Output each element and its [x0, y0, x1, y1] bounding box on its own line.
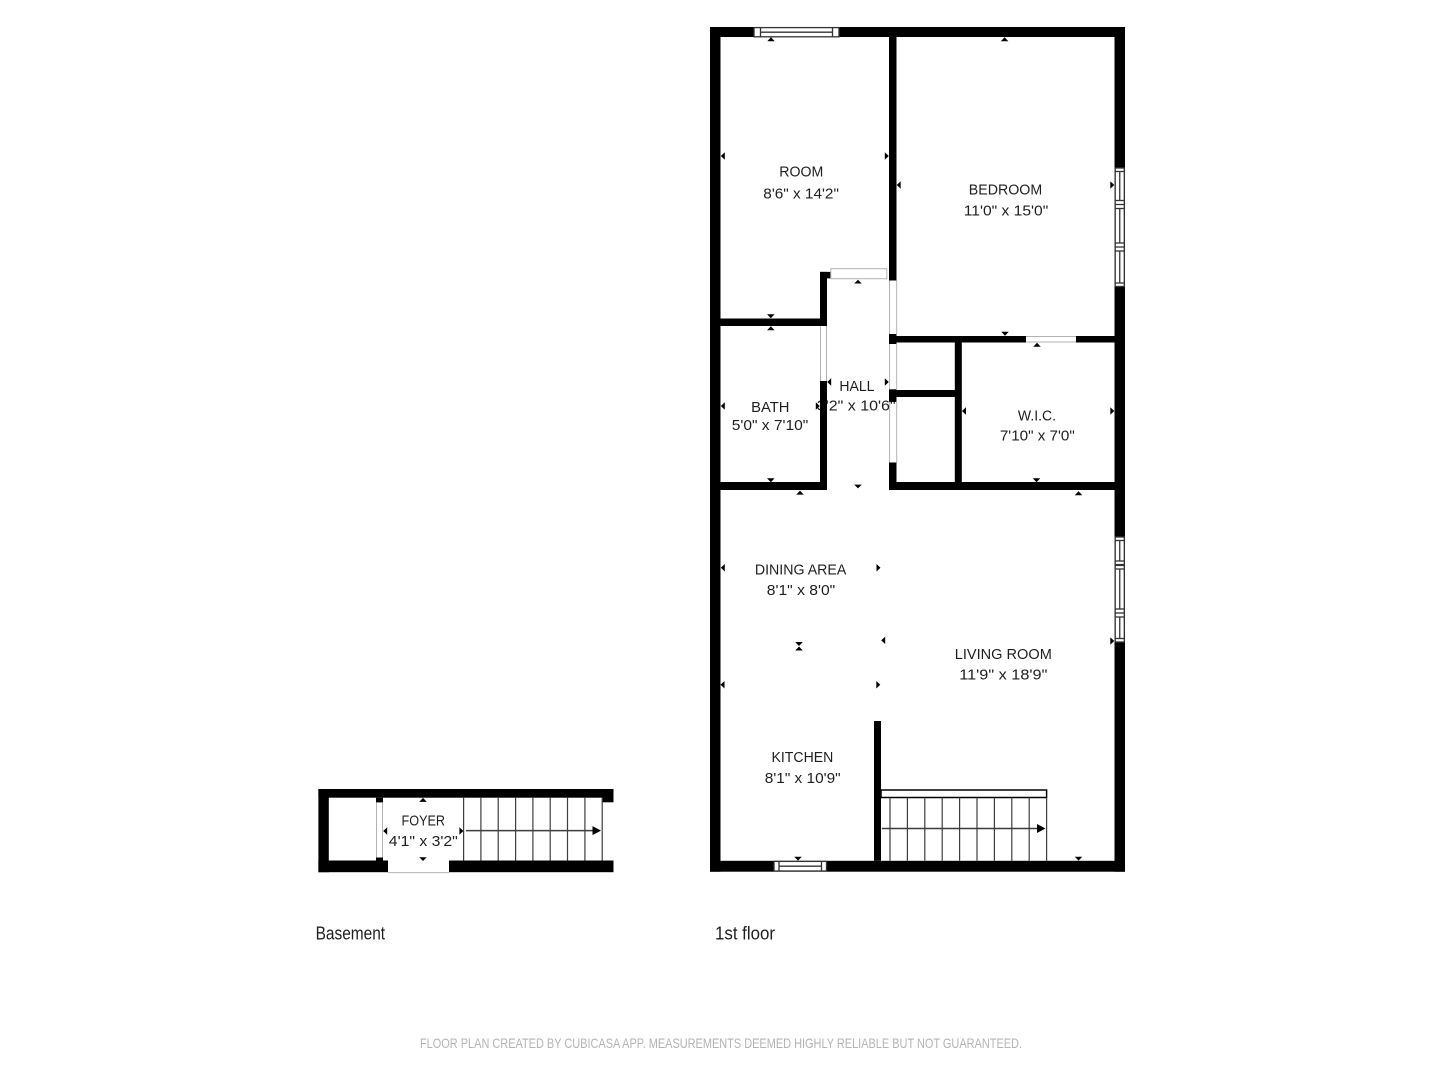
- svg-text:FLOOR PLAN CREATED BY CUBICASA: FLOOR PLAN CREATED BY CUBICASA APP. MEAS…: [420, 1036, 1022, 1051]
- svg-text:BEDROOM: BEDROOM: [969, 181, 1042, 198]
- svg-text:ROOM: ROOM: [779, 164, 823, 181]
- svg-text:BATH: BATH: [751, 399, 789, 416]
- svg-text:7'10" x 7'0": 7'10" x 7'0": [1000, 428, 1075, 445]
- svg-text:11'9" x 18'9": 11'9" x 18'9": [959, 666, 1047, 683]
- svg-text:8'1" x 8'0": 8'1" x 8'0": [767, 582, 836, 599]
- svg-text:Basement: Basement: [316, 923, 386, 943]
- svg-text:5'0" x 7'10": 5'0" x 7'10": [732, 417, 809, 434]
- svg-text:HALL: HALL: [839, 378, 874, 395]
- svg-text:FOYER: FOYER: [402, 813, 446, 830]
- svg-text:W.I.C.: W.I.C.: [1018, 408, 1056, 425]
- svg-text:11'0" x 15'0": 11'0" x 15'0": [964, 203, 1049, 220]
- svg-text:8'6" x 14'2": 8'6" x 14'2": [763, 185, 839, 202]
- svg-text:DINING AREA: DINING AREA: [755, 561, 847, 578]
- svg-text:8'1" x 10'9": 8'1" x 10'9": [765, 770, 841, 787]
- svg-text:KITCHEN: KITCHEN: [772, 749, 834, 766]
- svg-text:4'1" x 3'2": 4'1" x 3'2": [389, 833, 458, 850]
- svg-text:3'2" x 10'6": 3'2" x 10'6": [817, 398, 896, 415]
- svg-text:LIVING ROOM: LIVING ROOM: [955, 646, 1052, 663]
- svg-text:1st floor: 1st floor: [715, 923, 775, 943]
